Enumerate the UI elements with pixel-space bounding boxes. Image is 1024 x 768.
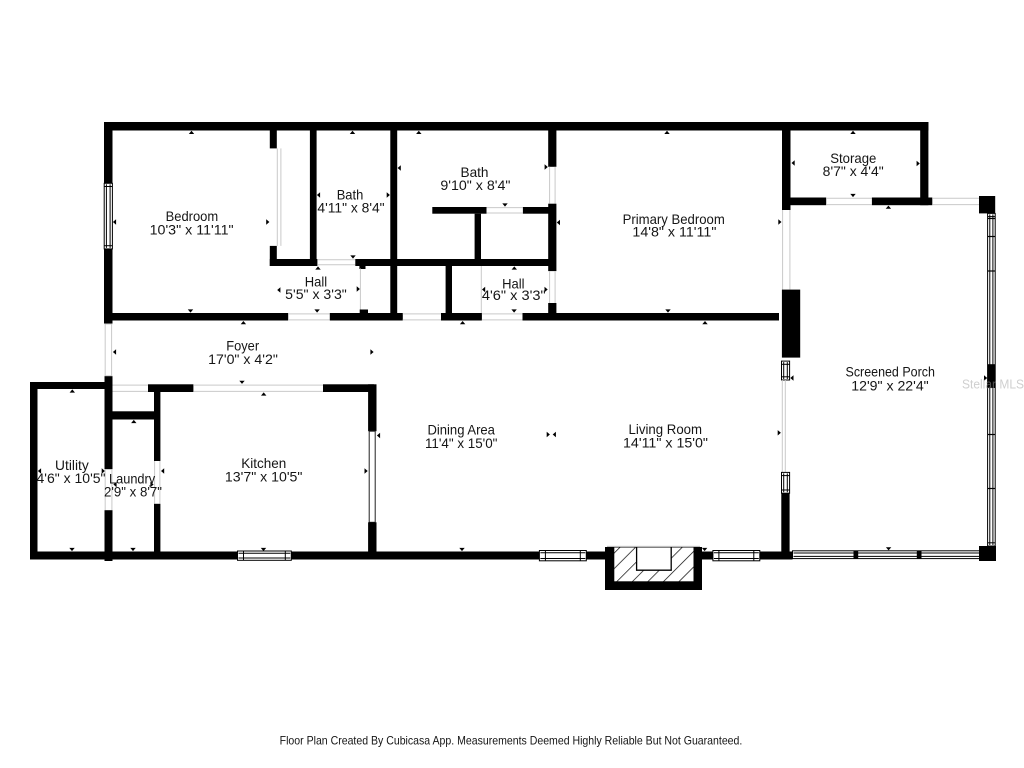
svg-text:14'11" x 15'0": 14'11" x 15'0" [623, 435, 708, 450]
svg-text:2'9" x 8'7": 2'9" x 8'7" [104, 485, 162, 500]
svg-text:17'0" x 4'2": 17'0" x 4'2" [208, 352, 278, 367]
svg-text:Screened Porch: Screened Porch [846, 364, 935, 379]
svg-text:10'3" x 11'11": 10'3" x 11'11" [150, 222, 234, 237]
svg-text:12'9" x 22'4": 12'9" x 22'4" [851, 379, 929, 394]
svg-text:4'6" x 3'3": 4'6" x 3'3" [482, 288, 546, 303]
svg-text:5'5" x 3'3": 5'5" x 3'3" [285, 287, 347, 302]
svg-text:9'10" x 8'4": 9'10" x 8'4" [440, 178, 510, 193]
svg-text:Floor Plan Created By Cubicasa: Floor Plan Created By Cubicasa App. Meas… [280, 734, 743, 747]
svg-text:11'4" x 15'0": 11'4" x 15'0" [425, 436, 498, 451]
svg-text:4'6" x 10'5": 4'6" x 10'5" [37, 471, 106, 486]
svg-text:14'8" x 11'11": 14'8" x 11'11" [632, 225, 716, 240]
svg-text:Stellar MLS: Stellar MLS [962, 377, 1024, 392]
svg-text:13'7" x 10'5": 13'7" x 10'5" [225, 469, 303, 484]
svg-text:4'11" x 8'4": 4'11" x 8'4" [317, 201, 384, 216]
svg-text:8'7" x 4'4": 8'7" x 4'4" [823, 164, 884, 179]
